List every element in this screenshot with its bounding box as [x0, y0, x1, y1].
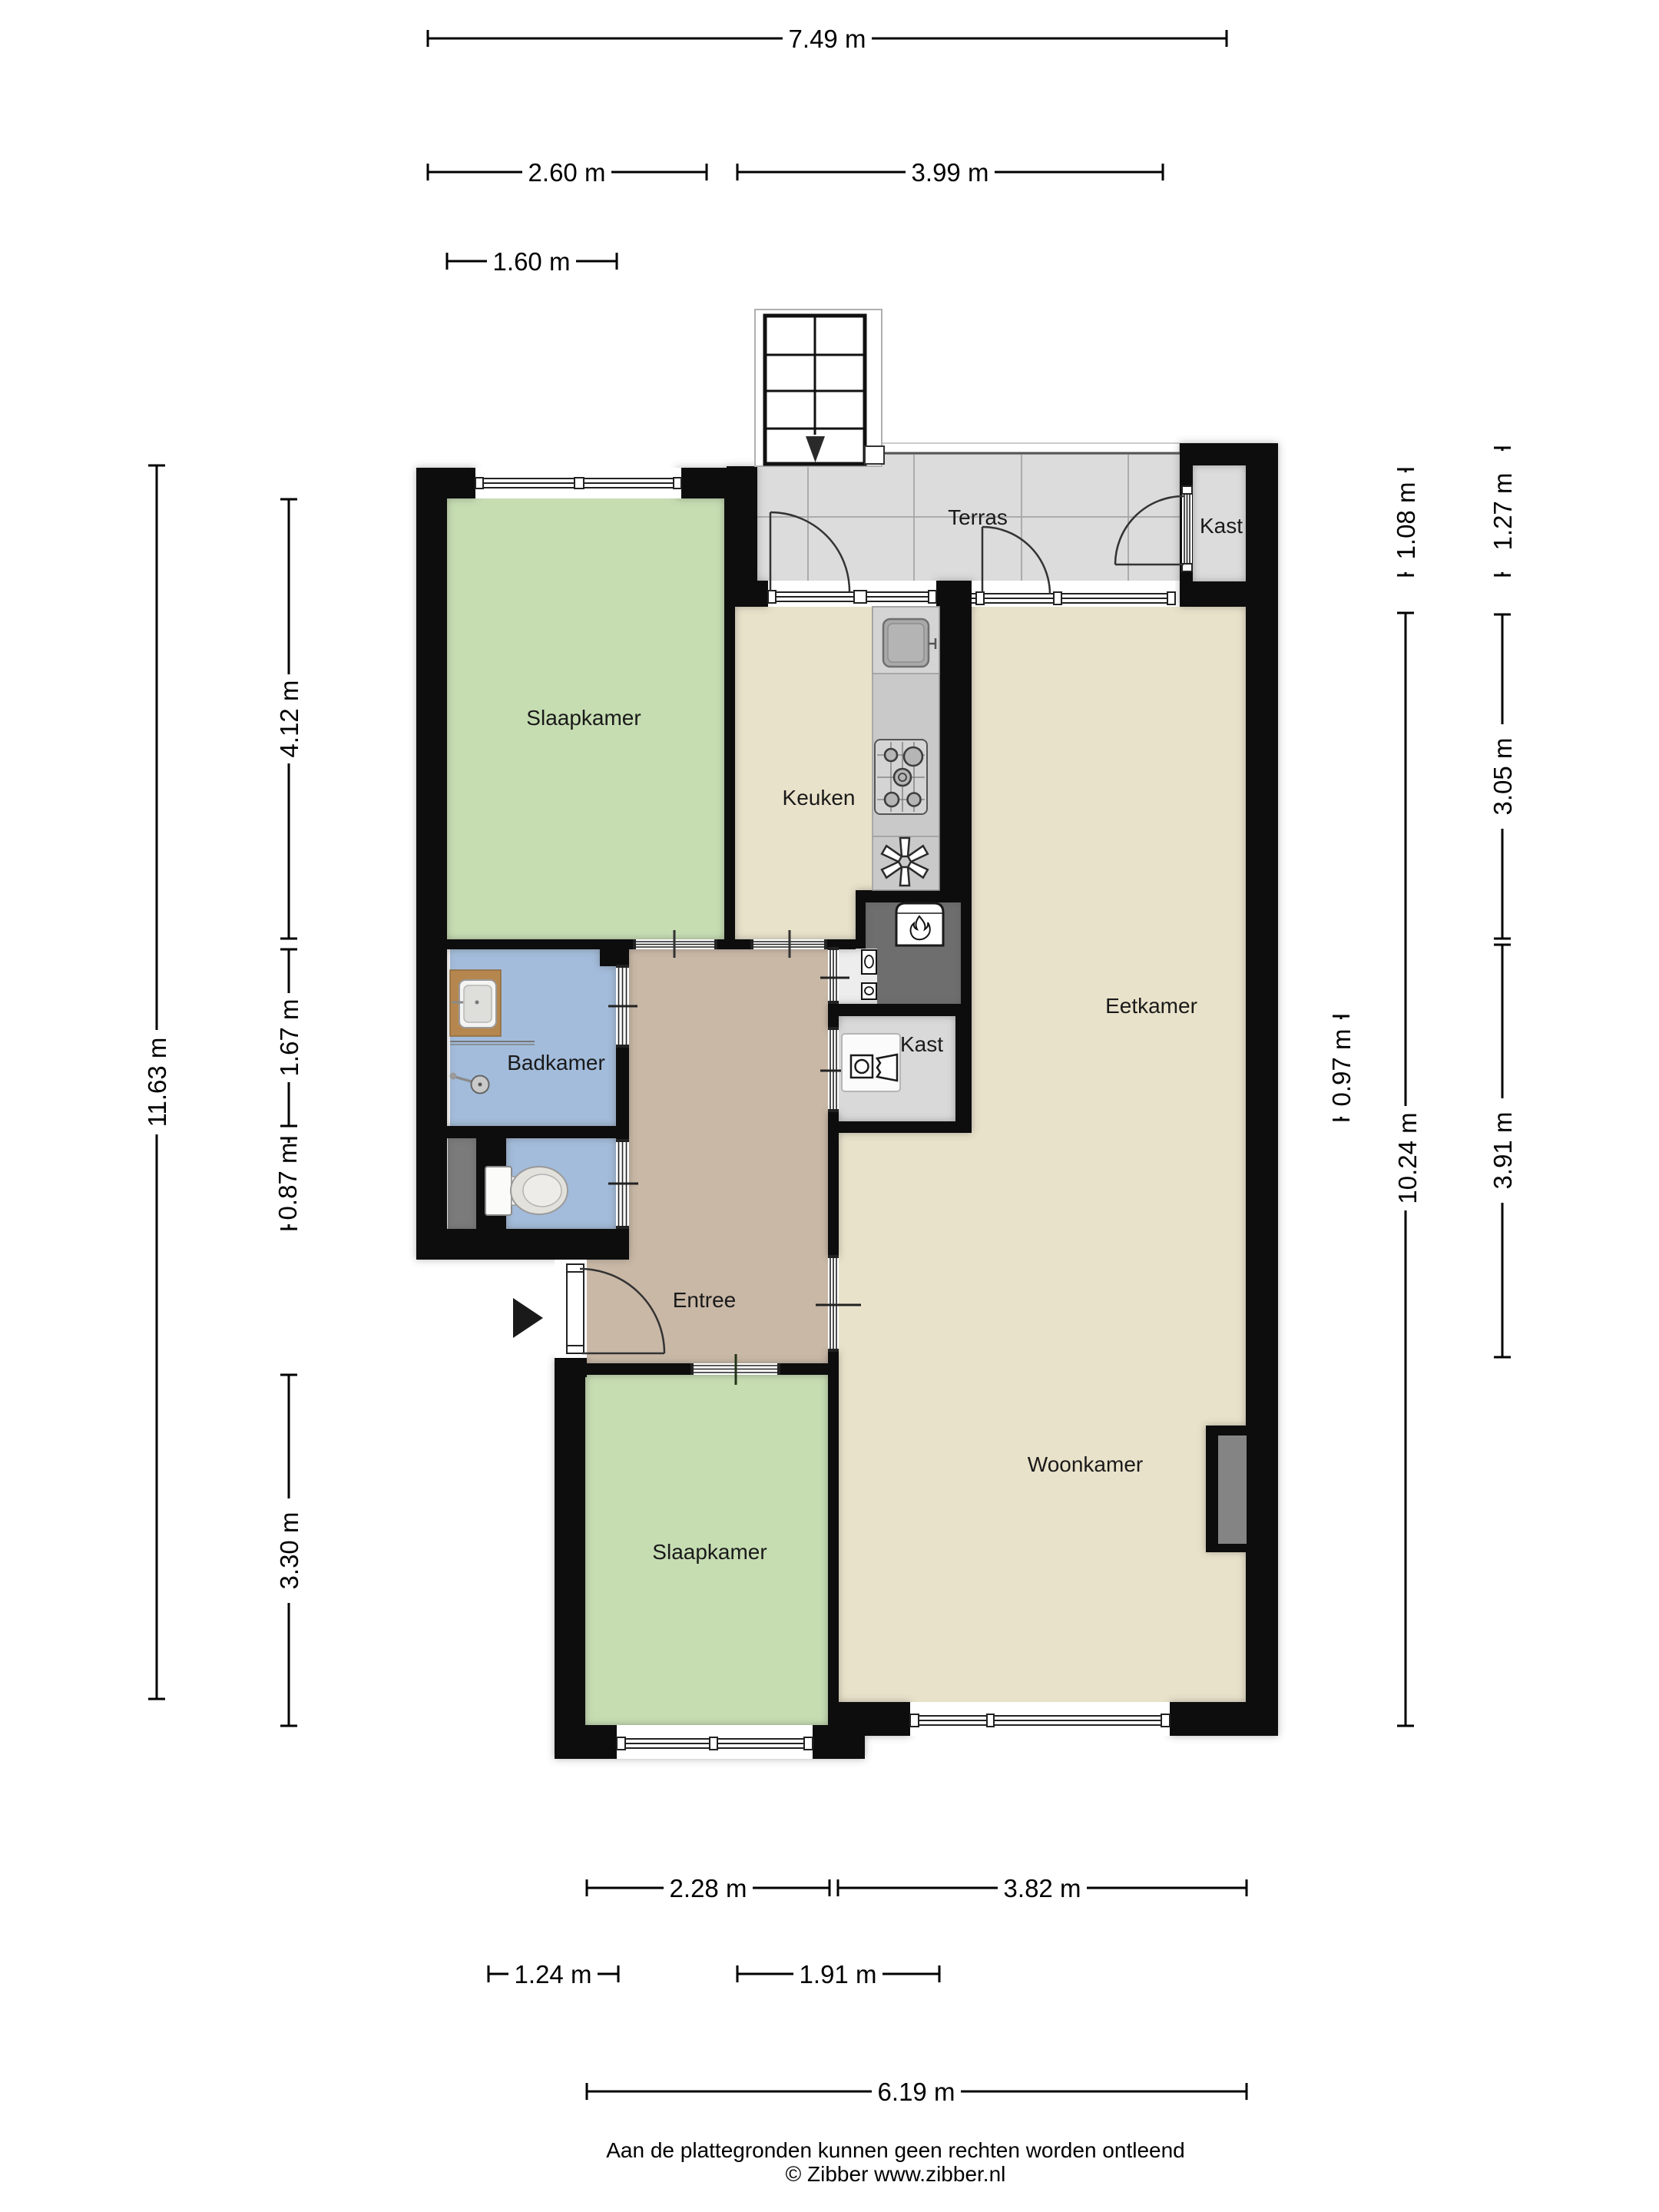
svg-text:Kast: Kast: [900, 1032, 943, 1056]
svg-text:0.87 m: 0.87 m: [273, 1143, 302, 1220]
svg-text:1.08 m: 1.08 m: [1392, 482, 1420, 560]
svg-text:3.30 m: 3.30 m: [275, 1512, 303, 1590]
svg-text:3.91 m: 3.91 m: [1488, 1112, 1517, 1190]
svg-text:3.82 m: 3.82 m: [1004, 1874, 1081, 1902]
svg-text:6.19 m: 6.19 m: [878, 2078, 955, 2106]
svg-text:1.24 m: 1.24 m: [515, 1960, 592, 1988]
svg-text:1.27 m: 1.27 m: [1488, 473, 1517, 551]
svg-text:1.91 m: 1.91 m: [800, 1960, 877, 1988]
svg-text:2.60 m: 2.60 m: [528, 158, 606, 187]
svg-text:© Zibber www.zibber.nl: © Zibber www.zibber.nl: [786, 2162, 1006, 2186]
svg-text:4.12 m: 4.12 m: [275, 680, 303, 758]
svg-text:Kast: Kast: [1200, 514, 1243, 538]
svg-text:1.67 m: 1.67 m: [275, 999, 303, 1077]
svg-text:0.97 m: 0.97 m: [1327, 1029, 1356, 1107]
svg-text:Aan de plattegronden kunnen ge: Aan de plattegronden kunnen geen rechten…: [606, 2138, 1184, 2162]
svg-text:Keuken: Keuken: [783, 786, 856, 810]
svg-text:Entree: Entree: [673, 1288, 737, 1312]
svg-text:2.28 m: 2.28 m: [670, 1874, 747, 1902]
svg-text:Slaapkamer: Slaapkamer: [652, 1540, 767, 1564]
svg-text:1.60 m: 1.60 m: [493, 247, 571, 276]
svg-text:Badkamer: Badkamer: [507, 1051, 605, 1075]
svg-text:3.05 m: 3.05 m: [1488, 738, 1517, 816]
svg-text:10.24 m: 10.24 m: [1393, 1112, 1422, 1204]
svg-text:Woonkamer: Woonkamer: [1028, 1452, 1143, 1476]
svg-text:11.63 m: 11.63 m: [143, 1038, 171, 1128]
svg-text:Terras: Terras: [948, 505, 1008, 529]
svg-text:3.99 m: 3.99 m: [912, 158, 989, 187]
svg-text:7.49 m: 7.49 m: [789, 25, 866, 53]
svg-text:Eetkamer: Eetkamer: [1105, 994, 1197, 1018]
svg-text:Slaapkamer: Slaapkamer: [526, 706, 641, 730]
